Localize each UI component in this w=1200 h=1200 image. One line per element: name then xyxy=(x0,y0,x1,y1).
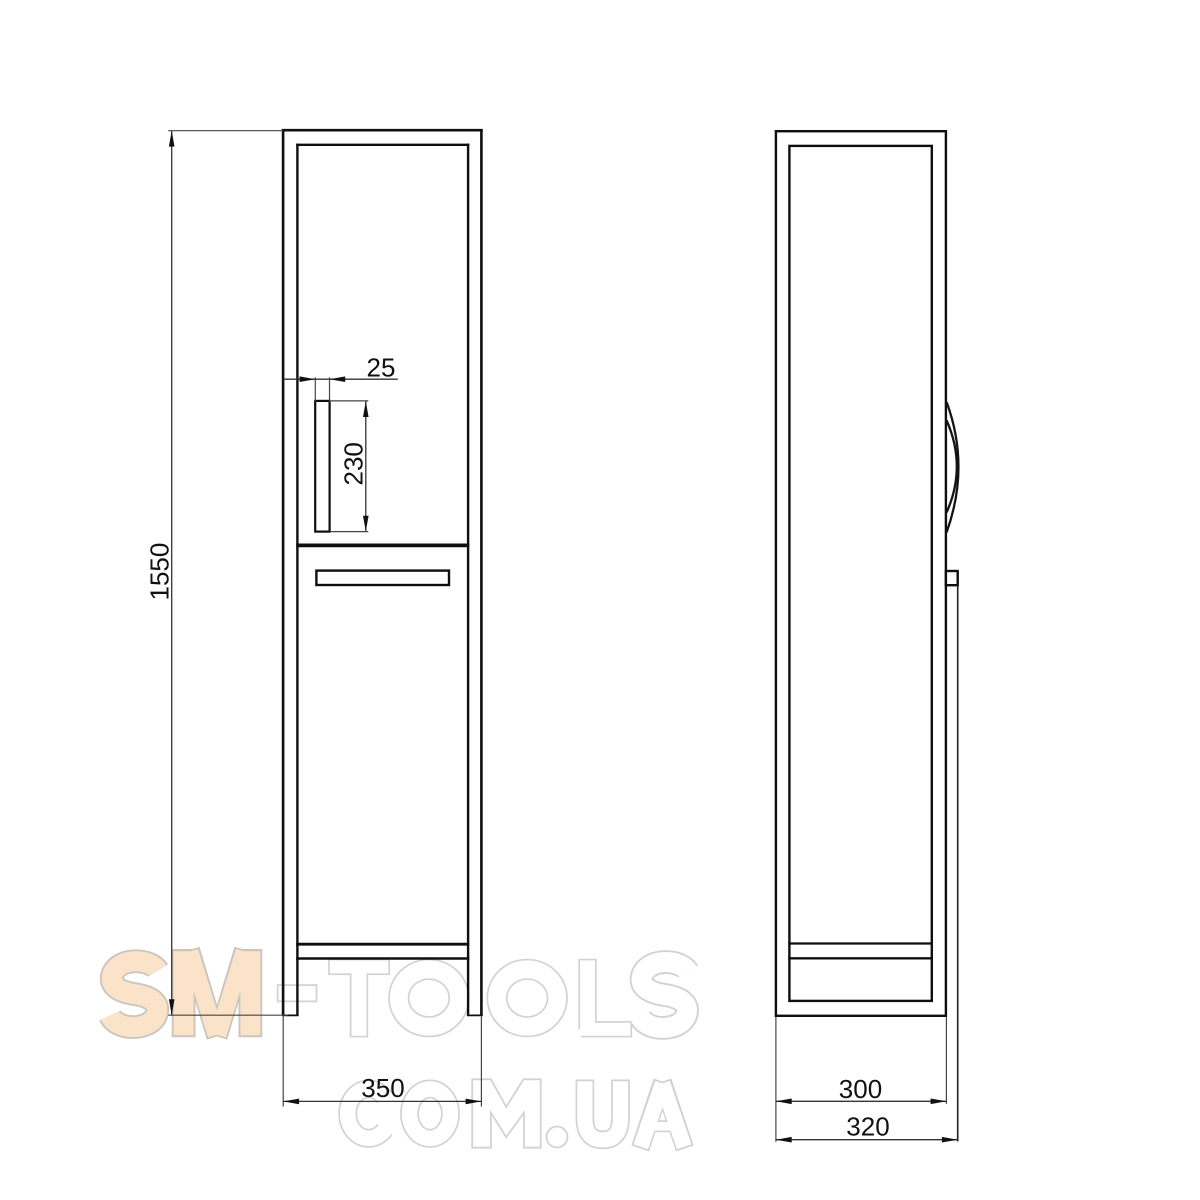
svg-text:230: 230 xyxy=(339,442,369,485)
svg-text:300: 300 xyxy=(839,1074,882,1104)
svg-text:320: 320 xyxy=(846,1112,889,1142)
svg-text:25: 25 xyxy=(367,352,396,382)
svg-text:350: 350 xyxy=(361,1073,404,1103)
svg-text:1550: 1550 xyxy=(145,543,175,601)
